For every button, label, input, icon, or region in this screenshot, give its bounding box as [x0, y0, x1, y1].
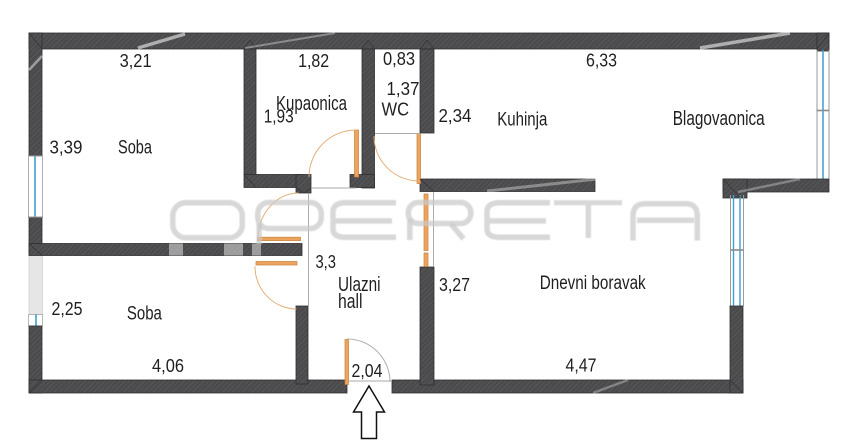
- svg-text:3,27: 3,27: [439, 275, 470, 295]
- svg-text:6,33: 6,33: [586, 51, 617, 71]
- svg-text:Soba: Soba: [127, 304, 162, 325]
- svg-text:0,83: 0,83: [383, 49, 415, 69]
- svg-text:3,3: 3,3: [315, 252, 336, 272]
- svg-text:Soba: Soba: [118, 138, 152, 159]
- svg-text:Dnevni boravak: Dnevni boravak: [540, 273, 646, 294]
- svg-text:2,25: 2,25: [52, 299, 83, 319]
- svg-text:Kuhinja: Kuhinja: [497, 110, 547, 131]
- svg-text:2,04: 2,04: [352, 361, 383, 381]
- svg-text:1,82: 1,82: [298, 51, 329, 71]
- svg-text:3,21: 3,21: [120, 51, 152, 71]
- svg-text:4,06: 4,06: [152, 356, 184, 376]
- svg-text:4,47: 4,47: [566, 356, 597, 376]
- svg-text:Blagovaonica: Blagovaonica: [673, 108, 766, 130]
- svg-text:2,34: 2,34: [439, 106, 472, 126]
- svg-text:hall: hall: [338, 291, 363, 313]
- svg-text:WC: WC: [382, 99, 410, 120]
- svg-text:1,93: 1,93: [264, 107, 294, 127]
- svg-text:1,37: 1,37: [387, 79, 420, 99]
- svg-text:3,39: 3,39: [50, 138, 83, 158]
